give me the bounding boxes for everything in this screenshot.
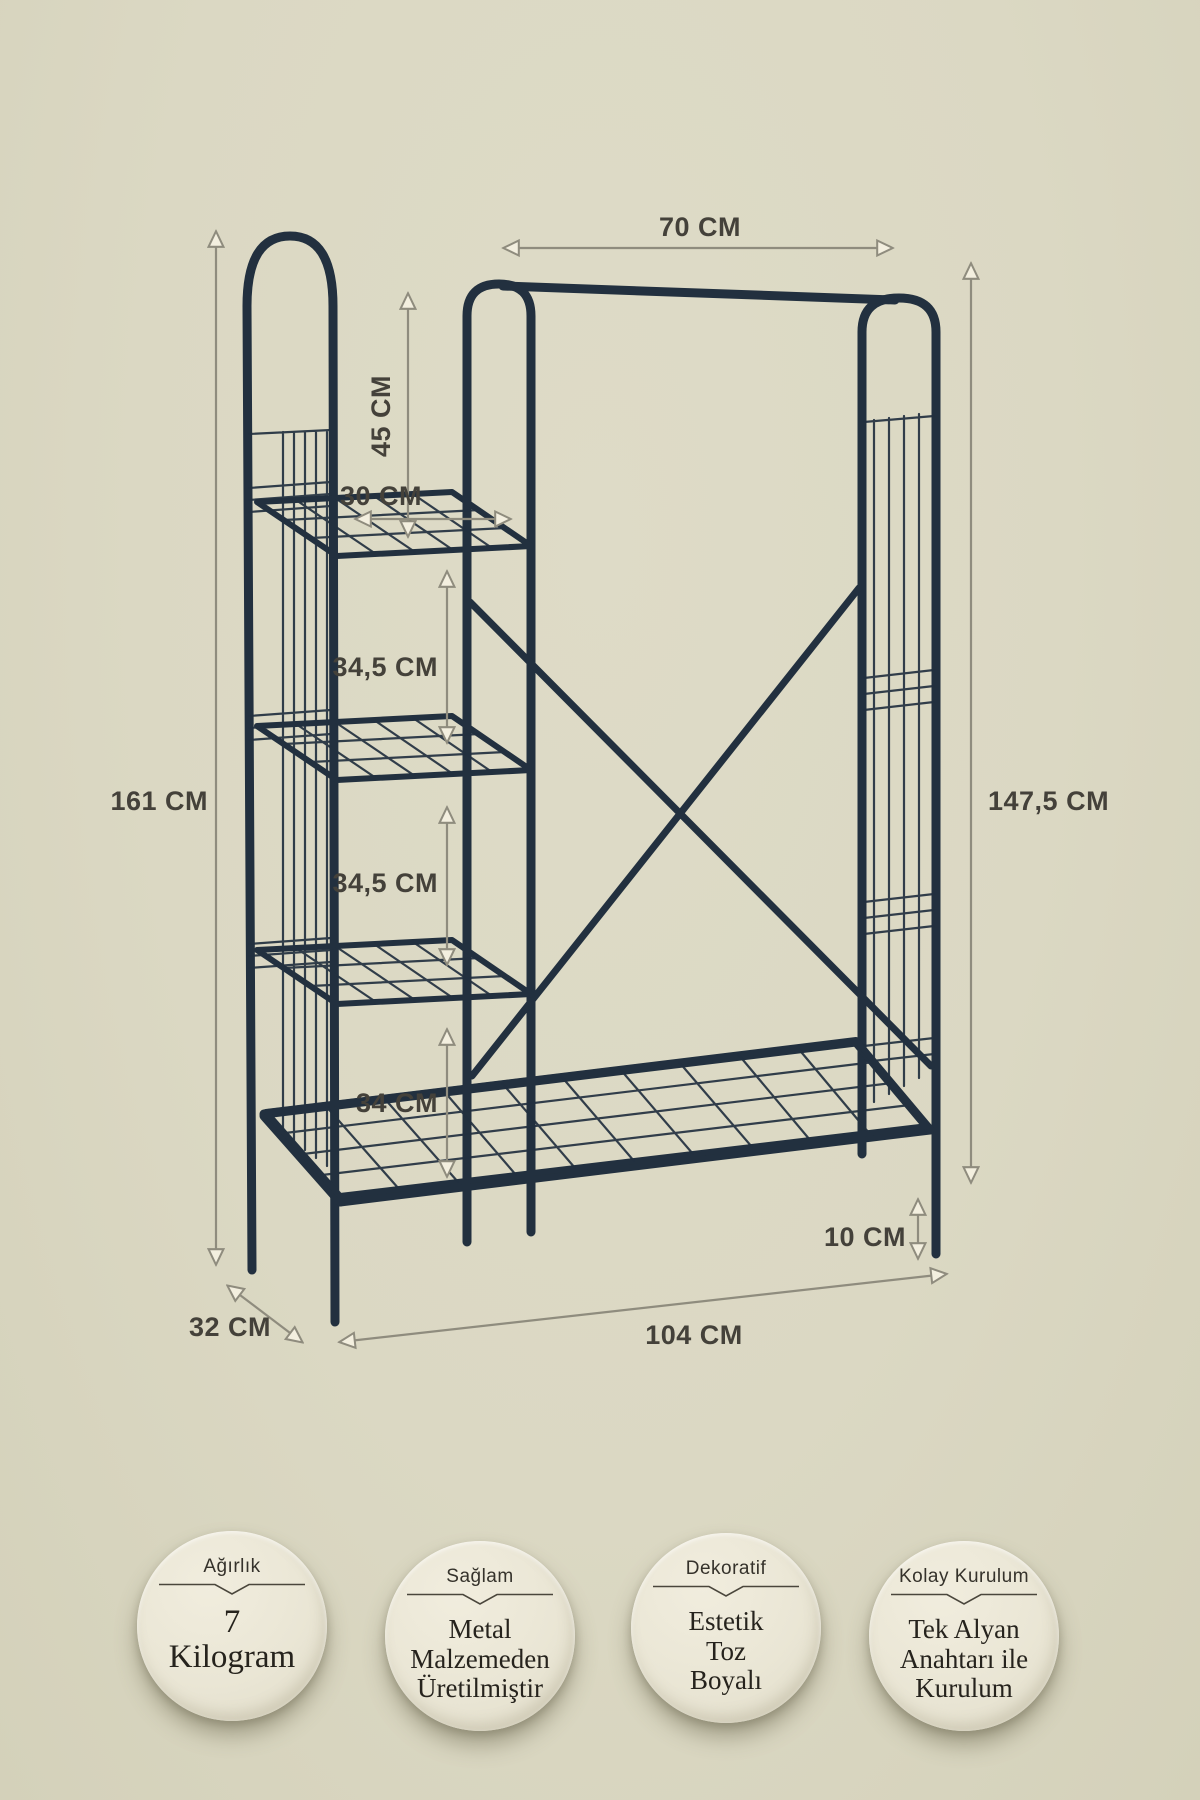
badge-title: Ağırlık [203, 1556, 260, 1578]
dim-label-shelf-gap-3: 34 CM [356, 1088, 438, 1118]
badge-text: Estetik Toz Boyalı [689, 1607, 764, 1696]
right-panel-mesh [864, 414, 934, 1102]
badge-text-line: Kurulum [900, 1674, 1028, 1704]
badge-text-line: Toz [689, 1637, 764, 1667]
badge-title: Dekoratif [686, 1558, 767, 1580]
dimension-labels: 70 CM 45 CM 30 CM 34,5 CM 34,5 CM 34 CM … [110, 212, 1109, 1350]
badge-text-line: Boyalı [689, 1666, 764, 1696]
dim-label-total-width: 104 CM [645, 1320, 743, 1350]
product-dimension-sheet: 70 CM 45 CM 30 CM 34,5 CM 34,5 CM 34 CM … [0, 0, 1200, 1800]
badge-text-line: Malzemeden [410, 1645, 549, 1675]
dim-label-top-gap: 45 CM [366, 375, 396, 457]
dim-label-hanger-width: 70 CM [659, 212, 741, 242]
badge-weight: Ağırlık 7 Kilogram [137, 1531, 327, 1721]
badge-title: Sağlam [446, 1566, 513, 1588]
chevron-divider-icon [405, 1592, 555, 1607]
dim-label-side-height: 147,5 CM [988, 786, 1109, 816]
badge-text: 7 Kilogram [169, 1605, 295, 1674]
badge-material: Sağlam Metal Malzemeden Üretilmiştir [385, 1541, 575, 1731]
dim-label-shelf-width: 30 CM [340, 481, 422, 511]
hanger-rod [503, 286, 895, 300]
chevron-divider-icon [157, 1582, 307, 1597]
badge-text-line: Tek Alyan [900, 1615, 1028, 1645]
dim-label-shelf-gap-2: 34,5 CM [332, 868, 438, 898]
chevron-divider-icon [889, 1592, 1039, 1607]
badge-text: Metal Malzemeden Üretilmiştir [410, 1615, 549, 1704]
badge-text-line: Metal [410, 1615, 549, 1645]
dim-label-shelf-gap-1: 34,5 CM [332, 652, 438, 682]
badge-text-line: 7 [169, 1605, 295, 1640]
badge-text-line: Estetik [689, 1607, 764, 1637]
badge-decorative: Dekoratif Estetik Toz Boyalı [631, 1533, 821, 1723]
chevron-divider-icon [651, 1584, 801, 1599]
dim-label-total-height: 161 CM [110, 786, 208, 816]
badge-text-line: Anahtarı ile [900, 1645, 1028, 1675]
base-front-rail [340, 1130, 930, 1202]
left-arch [247, 236, 335, 1322]
badge-text-line: Üretilmiştir [410, 1674, 549, 1704]
badge-text: Tek Alyan Anahtarı ile Kurulum [900, 1615, 1028, 1704]
badge-easy-assembly: Kolay Kurulum Tek Alyan Anahtarı ile Kur… [869, 1541, 1059, 1731]
base-left-rail [264, 1116, 340, 1202]
rack-illustration: 70 CM 45 CM 30 CM 34,5 CM 34,5 CM 34 CM … [0, 0, 1200, 1460]
dim-line-total-width [340, 1274, 946, 1342]
dim-label-clearance: 10 CM [824, 1222, 906, 1252]
badge-text-line: Kilogram [169, 1640, 295, 1675]
dim-label-depth: 32 CM [189, 1312, 271, 1342]
rack-frame [247, 236, 936, 1322]
badge-title: Kolay Kurulum [899, 1566, 1029, 1588]
